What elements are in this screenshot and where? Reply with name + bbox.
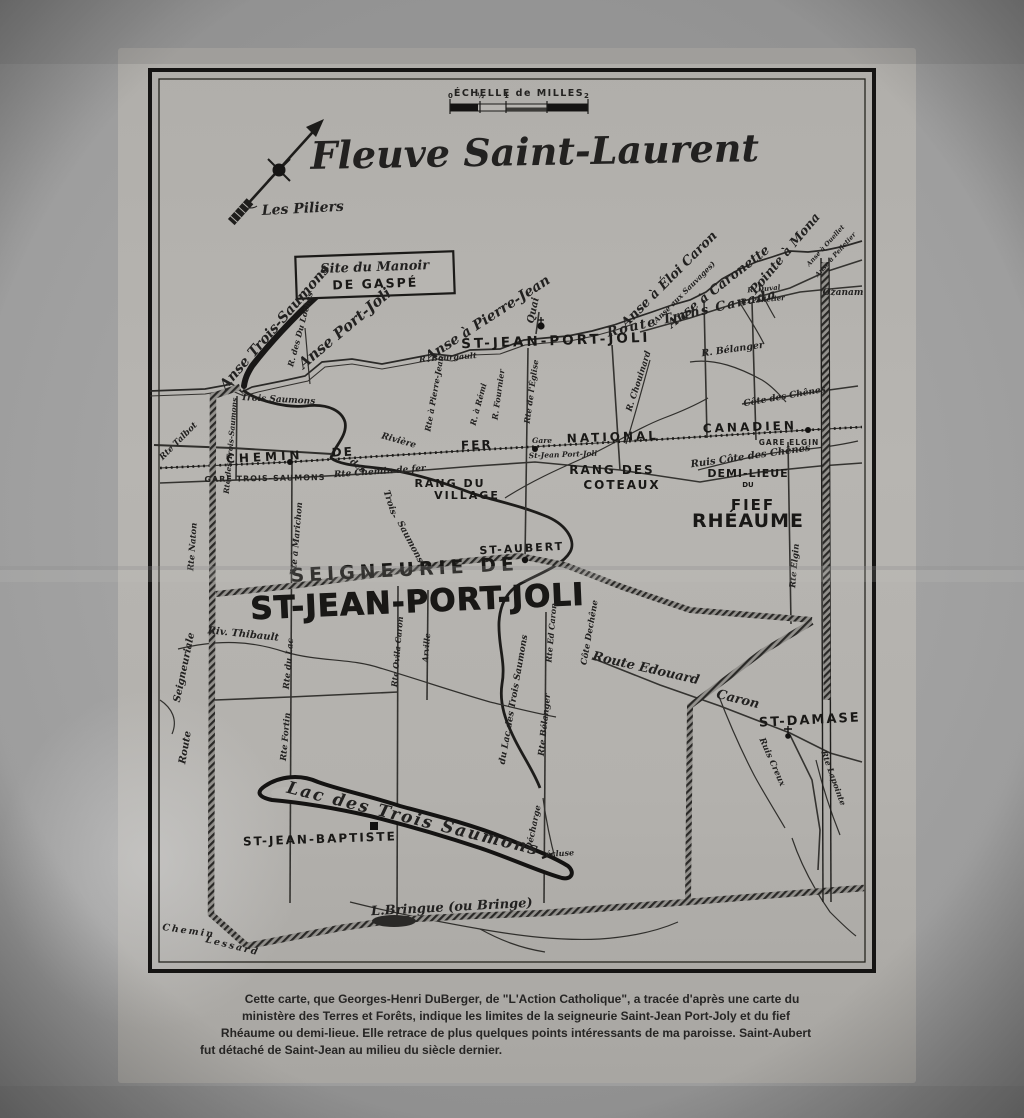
- map-canvas: ÉCHELLE de MILLES 0 ½ 1 2 Site du Manoir…: [0, 0, 1024, 1118]
- photo-of-historic-map: ÉCHELLE de MILLES 0 ½ 1 2 Site du Manoir…: [0, 0, 1024, 1118]
- vignette-overlay: [0, 0, 1024, 1118]
